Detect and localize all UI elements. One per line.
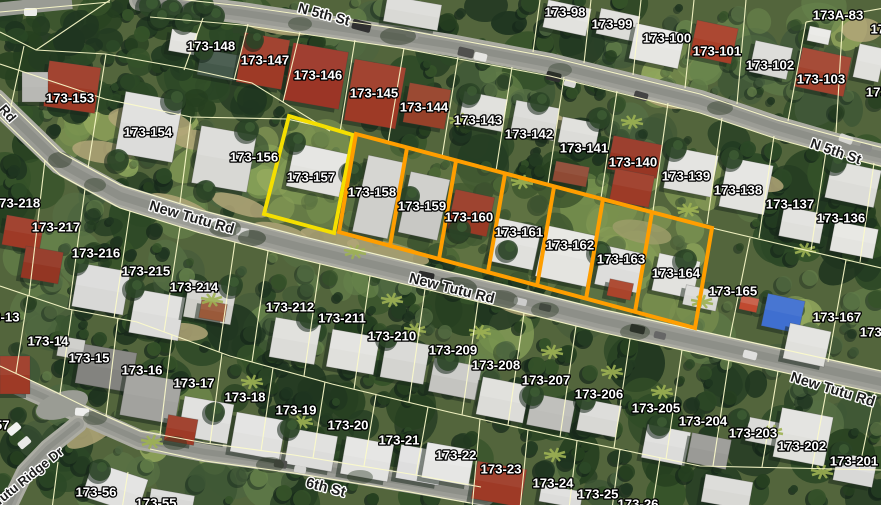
svg-text:173-145: 173-145 [350,86,398,101]
svg-text:173-99: 173-99 [591,17,632,32]
svg-text:173-102: 173-102 [746,58,794,73]
svg-text:173-166: 173-166 [860,325,881,340]
svg-text:173-202: 173-202 [778,439,826,454]
svg-text:173-159: 173-159 [398,199,446,214]
svg-text:173-22: 173-22 [435,448,476,463]
svg-text:173-146: 173-146 [294,68,342,83]
svg-text:173-55: 173-55 [135,496,176,505]
svg-text:173-211: 173-211 [318,311,366,326]
svg-text:173-214: 173-214 [170,280,219,295]
svg-text:173-56: 173-56 [75,485,116,500]
svg-text:173-148: 173-148 [187,39,235,54]
svg-text:173-212: 173-212 [266,300,314,315]
svg-text:173-84: 173-84 [870,22,881,37]
svg-text:173-26: 173-26 [617,497,658,505]
svg-text:173-167: 173-167 [813,310,861,325]
svg-text:173-157: 173-157 [287,170,335,185]
svg-text:173-216: 173-216 [72,246,120,261]
svg-text:173-208: 173-208 [472,358,520,373]
svg-text:173-141: 173-141 [560,141,608,156]
svg-text:173-154: 173-154 [124,125,173,140]
svg-text:173-218: 173-218 [0,196,40,211]
svg-text:173-165: 173-165 [709,284,757,299]
svg-text:173-204: 173-204 [679,414,728,429]
svg-text:173-20: 173-20 [327,418,368,433]
svg-text:173-137: 173-137 [766,197,814,212]
svg-text:173-98: 173-98 [544,5,585,20]
svg-text:173-142: 173-142 [505,127,553,142]
svg-text:173-138: 173-138 [714,183,762,198]
svg-text:173-160: 173-160 [445,210,493,225]
svg-text:173-210: 173-210 [368,329,416,344]
svg-text:173-144: 173-144 [400,100,449,115]
svg-text:173-153: 173-153 [46,91,94,106]
svg-text:173-21: 173-21 [378,433,419,448]
svg-text:173-14: 173-14 [27,334,69,349]
svg-text:173-25: 173-25 [577,487,618,502]
svg-text:173-16: 173-16 [121,363,162,378]
svg-text:173-205: 173-205 [632,401,680,416]
svg-text:173-163: 173-163 [597,252,645,267]
svg-text:173-156: 173-156 [230,150,278,165]
svg-text:173-57: 173-57 [0,418,10,433]
svg-text:173-103: 173-103 [797,72,845,87]
svg-text:173-19: 173-19 [275,403,316,418]
svg-text:173-104: 173-104 [866,85,881,100]
svg-text:173-24: 173-24 [532,476,574,491]
svg-text:173-201: 173-201 [830,454,878,469]
svg-text:173-101: 173-101 [693,44,741,59]
svg-text:173-143: 173-143 [454,113,502,128]
svg-text:173-18: 173-18 [224,390,265,405]
svg-text:173A-83: 173A-83 [813,8,864,23]
svg-text:173-139: 173-139 [662,169,710,184]
svg-text:173-136: 173-136 [817,211,865,226]
svg-text:173-162: 173-162 [546,238,594,253]
svg-text:173-209: 173-209 [429,343,477,358]
svg-text:173-164: 173-164 [652,266,701,281]
svg-text:173-100: 173-100 [643,31,691,46]
svg-text:173-140: 173-140 [609,155,657,170]
svg-text:173-203: 173-203 [729,426,777,441]
svg-text:173-147: 173-147 [241,53,289,68]
svg-text:173-15: 173-15 [68,351,109,366]
svg-text:173-23: 173-23 [480,462,521,477]
svg-text:173-206: 173-206 [575,387,623,402]
svg-text:173-217: 173-217 [32,220,80,235]
svg-text:173-13: 173-13 [0,310,20,325]
svg-text:173-215: 173-215 [122,264,170,279]
svg-text:173-17: 173-17 [173,376,214,391]
svg-text:173-207: 173-207 [522,373,570,388]
svg-text:173-158: 173-158 [348,185,396,200]
svg-text:173-161: 173-161 [495,225,543,240]
